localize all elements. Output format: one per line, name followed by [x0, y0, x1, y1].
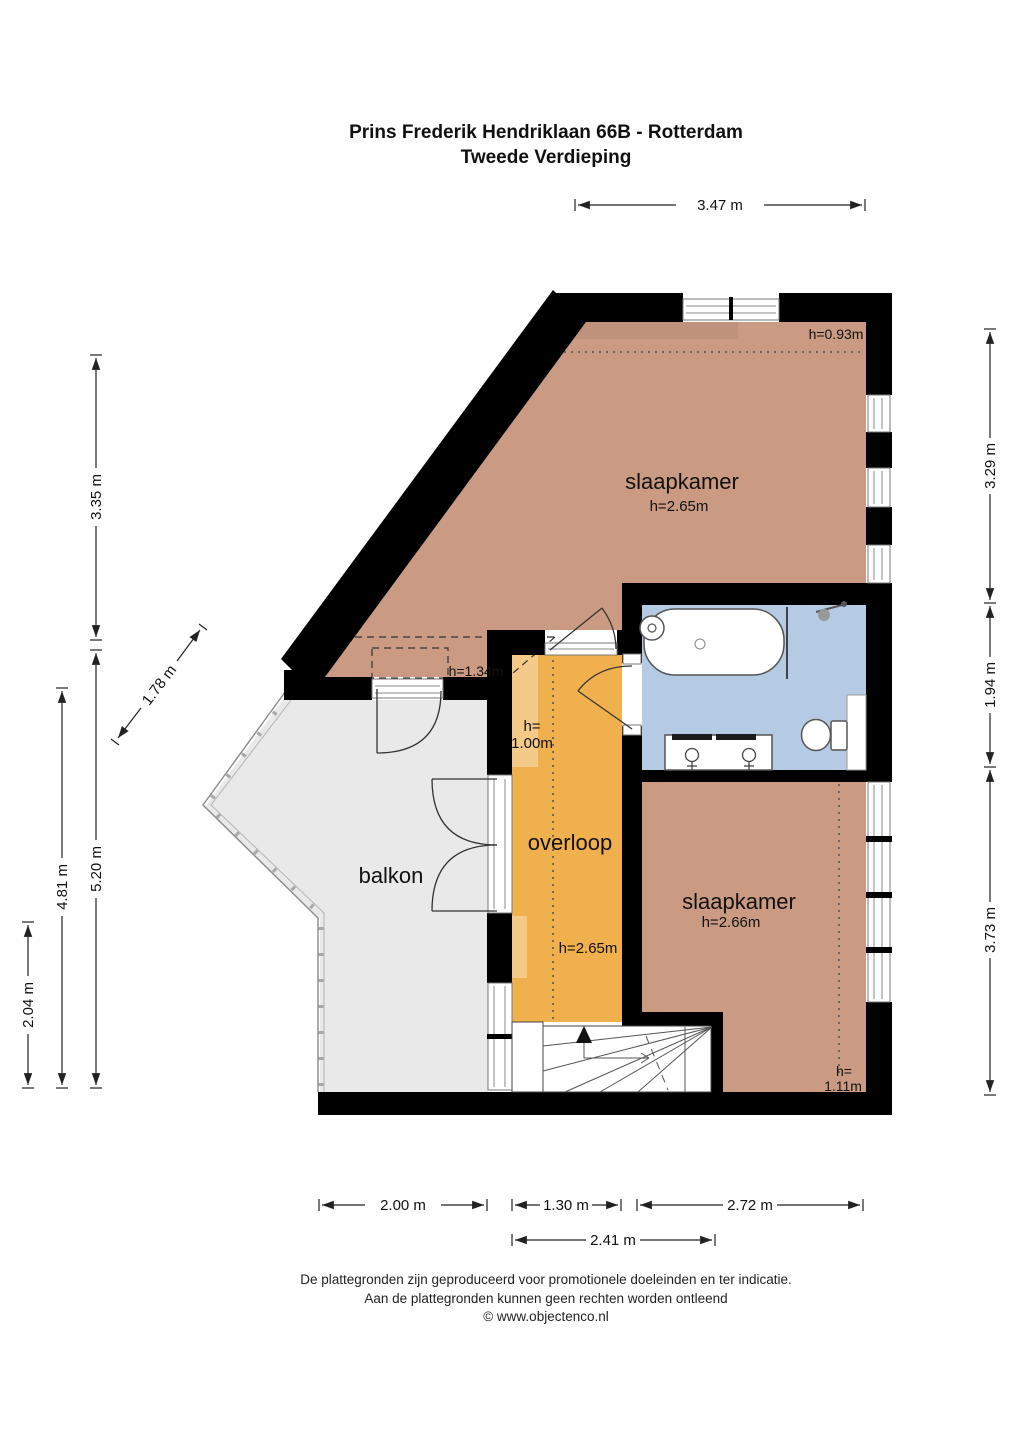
dim-left-481: 4.81 m: [54, 864, 71, 910]
dim-right-329: 3.29 m: [982, 443, 999, 489]
footer-disclaimer: De plattegronden zijn geproduceerd voor …: [300, 1272, 792, 1324]
floor-plan-page: Prins Frederik Hendriklaan 66B - Rotterd…: [0, 0, 1019, 1440]
dim-top-347: 3.47 m: [697, 197, 743, 214]
footer-copyright: © www.objectenco.nl: [483, 1309, 609, 1324]
balcony-door-frame: [372, 679, 443, 698]
dim-bottom-272: 2.72 m: [727, 1197, 773, 1214]
dim-left-520: 5.20 m: [88, 846, 105, 892]
landing-label: overloop: [528, 830, 612, 855]
bedroom1-height: h=2.65m: [650, 498, 709, 515]
dim-bottom-130: 1.30 m: [543, 1197, 589, 1214]
bedroom2-label: slaapkamer: [682, 889, 796, 914]
dim-bottom-200: 2.00 m: [380, 1197, 426, 1214]
window-right-2: [868, 468, 890, 507]
bathroom-cabinet: [847, 695, 866, 770]
dim-left-204: 2.04 m: [20, 982, 37, 1028]
window-right-1: [868, 395, 890, 432]
annotation-h100-line1: h=: [523, 718, 540, 735]
bathtub-drain: [695, 639, 705, 649]
page-title-floor: Tweede Verdieping: [461, 147, 632, 168]
dim-bottom-241: 2.41 m: [590, 1232, 636, 1249]
bathroom-door-jamb-bottom: [623, 725, 641, 735]
toilet: [802, 720, 848, 751]
bathtub-faucet: [640, 616, 664, 640]
footer-line-2: Aan de plattegronden kunnen geen rechten…: [364, 1291, 727, 1306]
footer-line-1: De plattegronden zijn geproduceerd voor …: [300, 1272, 792, 1287]
window-right-lower: [866, 782, 892, 1002]
window-right-3: [868, 545, 890, 583]
staircase: [512, 1022, 712, 1092]
dim-right-373: 3.73 m: [982, 907, 999, 953]
page-title-address: Prins Frederik Hendriklaan 66B - Rotterd…: [349, 122, 743, 143]
stair-treads-box: [543, 1026, 711, 1092]
annotation-h134: h=1.34m: [449, 663, 504, 679]
bedroom2-height: h=2.66m: [702, 914, 761, 931]
floor-plan-canvas: Prins Frederik Hendriklaan 66B - Rotterd…: [0, 0, 1019, 1440]
vanity-counter: [665, 735, 772, 770]
dim-right-194: 1.94 m: [982, 662, 999, 708]
balcony-label: balkon: [359, 863, 424, 888]
bathtub: [644, 609, 784, 675]
bathroom-door-jamb-top: [623, 654, 641, 664]
balcony-floor: [205, 690, 488, 1092]
french-door-frame: [488, 775, 512, 913]
annotation-h111-line1: h=: [836, 1063, 852, 1079]
landing-height: h=2.65m: [559, 940, 618, 957]
annotation-h100-line2: 1.00m: [511, 735, 553, 752]
bedroom1-label: slaapkamer: [625, 469, 739, 494]
annotation-h111-line2: 1.11m: [824, 1078, 862, 1094]
annotation-h093: h=0.93m: [809, 326, 864, 342]
dim-left-335: 3.35 m: [88, 474, 105, 520]
stair-side-strip: [512, 1022, 543, 1092]
window-stairwell: [487, 983, 512, 1090]
dim-diag-178: 1.78 m: [139, 662, 180, 709]
window-top: [683, 297, 779, 320]
